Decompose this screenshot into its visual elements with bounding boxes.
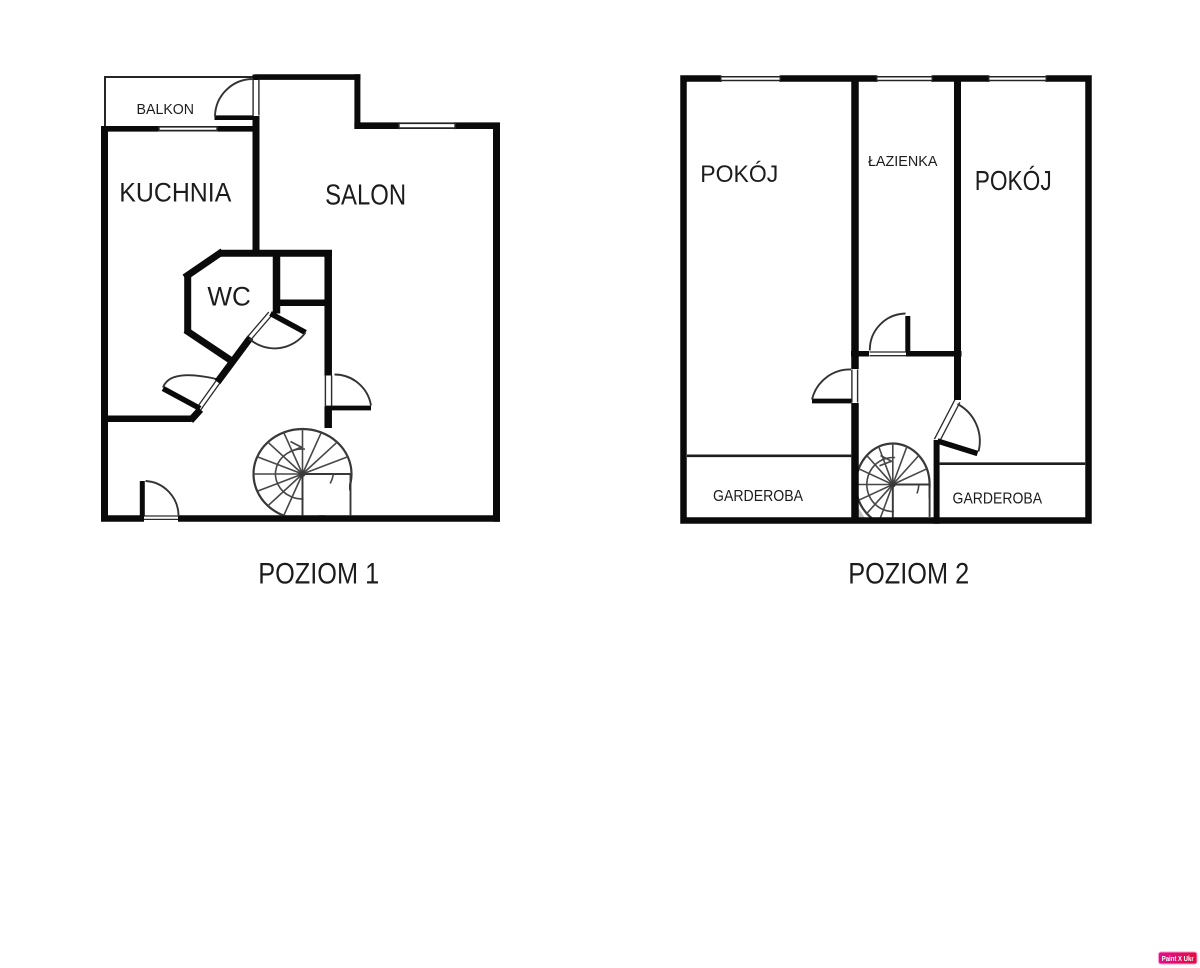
svg-text:POZIOM 2: POZIOM 2 <box>848 558 969 591</box>
svg-text:GARDEROBA: GARDEROBA <box>713 488 804 505</box>
svg-text:WC: WC <box>207 282 251 312</box>
svg-text:KUCHNIA: KUCHNIA <box>119 178 231 208</box>
svg-text:POKÓJ: POKÓJ <box>975 165 1052 196</box>
svg-text:ŁAZIENKA: ŁAZIENKA <box>868 153 938 170</box>
svg-text:POZIOM 1: POZIOM 1 <box>258 558 379 591</box>
svg-text:BALKON: BALKON <box>137 101 195 118</box>
svg-text:POKÓJ: POKÓJ <box>700 161 778 188</box>
svg-text:Paint X Ukr: Paint X Ukr <box>1162 954 1194 963</box>
svg-text:GARDEROBA: GARDEROBA <box>953 491 1043 508</box>
svg-text:SALON: SALON <box>325 180 406 212</box>
